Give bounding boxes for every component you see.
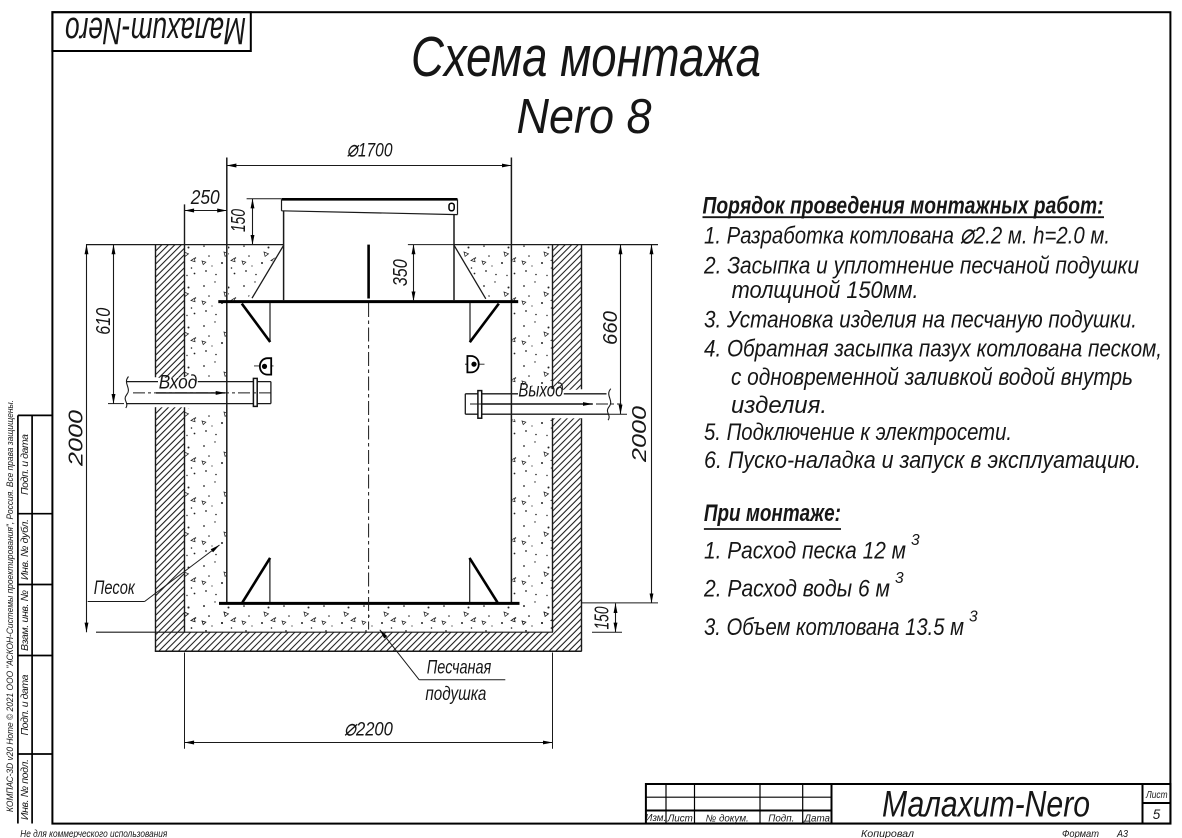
svg-text:Песчаная: Песчаная (427, 657, 492, 678)
svg-text:толщиной 150мм.: толщиной 150мм. (732, 277, 919, 304)
svg-text:А3: А3 (1116, 828, 1128, 838)
svg-text:Подп. и дата: Подп. и дата (19, 434, 31, 495)
svg-text:Вход: Вход (159, 373, 198, 394)
svg-text:При монтаже:: При монтаже: (704, 500, 841, 527)
svg-text:3: 3 (911, 532, 920, 549)
svg-text:5. Подключение к электросети.: 5. Подключение к электросети. (704, 419, 1012, 446)
svg-text:Песок: Песок (94, 578, 136, 599)
svg-text:Дата: Дата (803, 813, 830, 824)
svg-text:Порядок проведения монтажных р: Порядок проведения монтажных работ: (703, 192, 1104, 219)
svg-text:Инв. № дубл.: Инв. № дубл. (19, 519, 31, 580)
svg-text:350: 350 (390, 259, 412, 286)
svg-text:6. Пуско-наладка и запуск в эк: 6. Пуско-наладка и запуск в эксплуатацию… (704, 447, 1141, 474)
svg-text:610: 610 (93, 308, 115, 335)
svg-text:660: 660 (600, 311, 622, 345)
svg-text:Подп.: Подп. (768, 813, 794, 824)
svg-text:Копировал: Копировал (861, 828, 914, 838)
svg-text:Схема монтажа: Схема монтажа (411, 25, 761, 89)
svg-text:150: 150 (592, 607, 614, 630)
svg-text:подушка: подушка (425, 684, 486, 705)
svg-text:Выход: Выход (518, 381, 563, 402)
svg-text:1. Расход песка 12 м: 1. Расход песка 12 м (704, 538, 906, 565)
svg-text:Лист: Лист (1145, 790, 1167, 801)
svg-text:Малахит-Nero: Малахит-Nero (65, 9, 246, 51)
svg-text:изделия.: изделия. (731, 392, 827, 419)
svg-text:Изм.: Изм. (645, 813, 666, 824)
svg-text:№ докум.: № докум. (706, 813, 749, 824)
svg-text:2. Расход воды 6 м: 2. Расход воды 6 м (703, 576, 890, 603)
svg-text:Формат: Формат (1062, 828, 1099, 838)
svg-text:Взам. инв. №: Взам. инв. № (19, 590, 31, 651)
svg-text:2000: 2000 (629, 406, 651, 463)
svg-text:Инв. № подл.: Инв. № подл. (19, 759, 31, 820)
svg-text:Подп. и дата: Подп. и дата (19, 674, 31, 735)
svg-text:3: 3 (895, 570, 904, 587)
svg-text:3. Установка изделия на песчан: 3. Установка изделия на песчаную подушки… (704, 306, 1137, 333)
svg-text:4. Обратная засыпка пазух котл: 4. Обратная засыпка пазух котлована песк… (704, 336, 1162, 363)
svg-text:Не для коммерческого использов: Не для коммерческого использования (20, 828, 167, 838)
svg-text:2000: 2000 (66, 410, 88, 467)
svg-text:с одновременной заливкой водой: с одновременной заливкой водой внутрь (731, 364, 1133, 391)
svg-text:КОМПАС-3D v20 Home © 2021 ООО: КОМПАС-3D v20 Home © 2021 ООО "АСКОН-Сис… (5, 400, 15, 812)
svg-text:Лист: Лист (667, 813, 693, 824)
svg-text:3. Объем котлована 13.5 м: 3. Объем котлована 13.5 м (704, 614, 964, 641)
svg-text:1. Разработка котлована ⌀2.2 м: 1. Разработка котлована ⌀2.2 м. h=2.0 м. (704, 218, 1110, 249)
svg-text:250: 250 (190, 187, 220, 209)
svg-text:Малахит-Nero: Малахит-Nero (882, 784, 1090, 825)
svg-text:150: 150 (228, 209, 250, 232)
svg-text:Nero 8: Nero 8 (517, 90, 652, 144)
svg-text:5: 5 (1153, 807, 1161, 822)
svg-text:2. Засыпка и уплотнение песчан: 2. Засыпка и уплотнение песчаной подушки (703, 252, 1139, 279)
svg-text:3: 3 (969, 608, 978, 625)
